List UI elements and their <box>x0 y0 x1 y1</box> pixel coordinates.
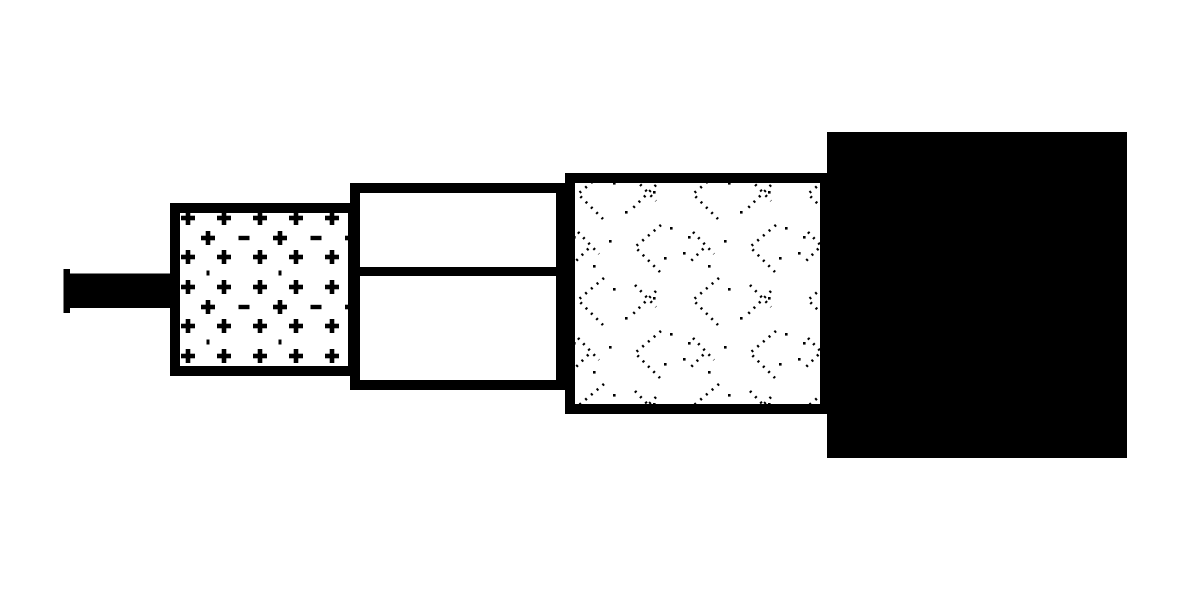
outer-jacket-layer <box>827 132 1127 458</box>
center-conductor <box>64 274 176 309</box>
foil-shield-layer <box>355 188 561 385</box>
coax-diagram <box>0 0 1200 600</box>
diagram-svg <box>0 0 1200 600</box>
foil-shield-divider <box>352 267 564 276</box>
dielectric-insulation-layer <box>175 208 353 371</box>
braided-shield-layer <box>570 178 825 409</box>
